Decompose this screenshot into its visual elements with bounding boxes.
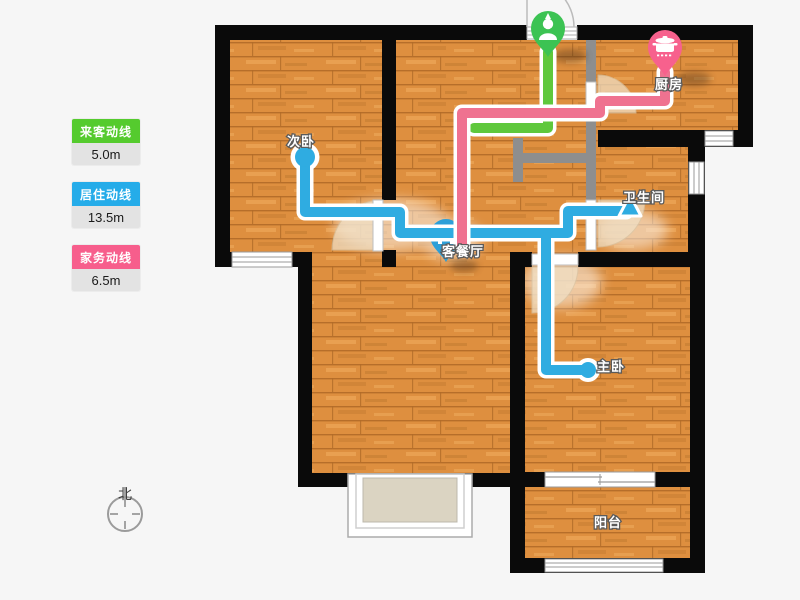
room-label-bedroom2: 次卧: [287, 134, 315, 149]
route-end-cap: [580, 362, 596, 378]
floorplan-page: 来客动线 5.0m 居住动线 13.5m 家务动线 6.5m: [0, 0, 800, 600]
floorplan-canvas: 次卧 厨房 卫生间 客餐厅 主卧 阳台 北: [0, 0, 800, 600]
bay-window: [348, 474, 472, 537]
bathroom-window: [689, 162, 704, 194]
room-label-bathroom: 卫生间: [623, 190, 665, 205]
room-label-master-bedroom: 主卧: [597, 359, 625, 374]
balcony-sliding-door: [545, 472, 655, 487]
compass: 北: [108, 486, 142, 531]
room-label-living-dining: 客餐厅: [442, 244, 484, 259]
kitchen-window: [705, 131, 733, 146]
compass-north-label: 北: [118, 486, 132, 502]
balcony-window: [545, 559, 663, 572]
route-start-cap: [295, 147, 315, 167]
room-label-kitchen: 厨房: [655, 77, 683, 92]
bedroom2-window: [232, 252, 292, 267]
room-label-balcony: 阳台: [594, 515, 622, 530]
